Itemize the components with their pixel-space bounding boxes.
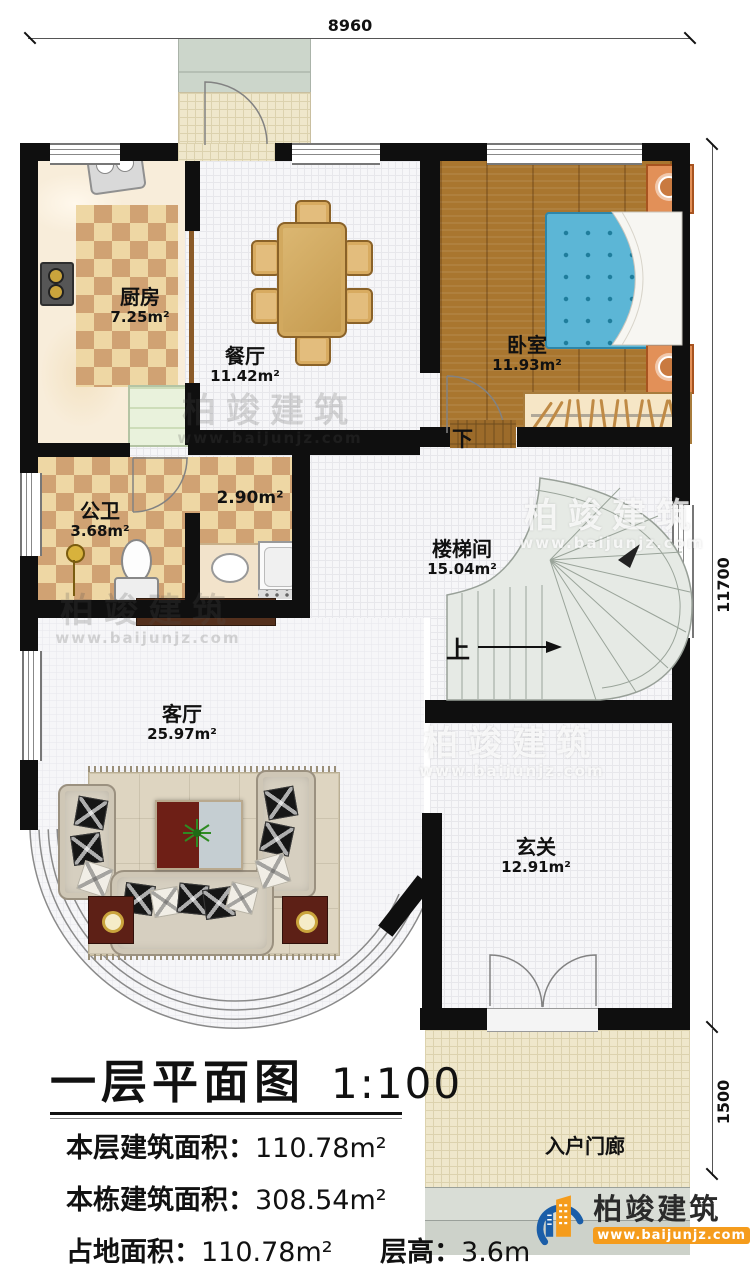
plant-icon [183,819,211,847]
porch-door [205,82,267,145]
plan-scale: 1:100 [331,1059,462,1108]
company-website: www.baijunjz.com [593,1227,750,1244]
logo-icon [528,1186,587,1252]
room-label-bedroom: 卧室 11.93m² [477,334,577,374]
room-label-entry-porch: 入户门廊 [505,1135,665,1158]
dim-line-right [712,145,713,1028]
company-logo: 柏竣建筑 www.baijunjz.com [528,1186,750,1252]
room-area: 7.25m² [90,309,190,326]
room-area: 15.04m² [407,561,517,578]
staircase-body [447,478,692,700]
stair-down-label: 下 [452,423,473,453]
title-underline-2 [50,1118,402,1119]
room-label-foyer: 玄关 12.91m² [486,836,586,876]
room-label-living: 客厅 25.97m² [132,703,232,743]
room-area: 2.90m² [205,489,295,509]
room-area: 12.91m² [486,859,586,876]
room-label-dining: 餐厅 11.42m² [195,345,295,385]
plan-title-row: 一层平面图1:100 [50,1046,462,1112]
stair-up-label: 上 [446,630,470,665]
room-name: 客厅 [132,703,232,726]
dim-height: 11700 [714,540,734,630]
room-name: 卧室 [477,334,577,357]
room-label-stairwell: 楼梯间 15.04m² [407,538,517,578]
dim-width: 8960 [300,16,400,35]
dim-line-top [28,38,690,39]
plan-title: 一层平面图 [50,1055,305,1109]
room-name: 厨房 [90,286,190,309]
info-floor-area: 本层建筑面积：110.78m² [66,1126,387,1165]
floor-plan-image: 厨房 7.25m² 餐厅 11.42m² 卧室 11.93m² 公卫 3.68m… [0,0,750,1269]
room-label-utility: 2.90m² [205,489,295,509]
dim-porch: 1500 [714,1067,734,1137]
bed-sheet [612,212,682,345]
company-name: 柏竣建筑 [593,1195,750,1224]
room-name: 公卫 [55,500,145,523]
room-name: 楼梯间 [407,538,517,561]
room-name: 玄关 [486,836,586,859]
room-area: 11.93m² [477,357,577,374]
room-area: 11.42m² [195,368,295,385]
title-underline [50,1112,402,1115]
info-total-area: 本栋建筑面积：308.54m² [66,1178,387,1217]
room-name: 入户门廊 [505,1135,665,1158]
room-name: 餐厅 [195,345,295,368]
room-label-bathroom: 公卫 3.68m² [55,500,145,540]
entry-double-door [490,955,596,1007]
room-area: 25.97m² [132,726,232,743]
info-land-area: 占地面积：110.78m² 层高：3.6m [66,1230,530,1269]
room-area: 3.68m² [55,523,145,540]
room-label-kitchen: 厨房 7.25m² [90,286,190,326]
dim-line-porch [712,1028,713,1176]
